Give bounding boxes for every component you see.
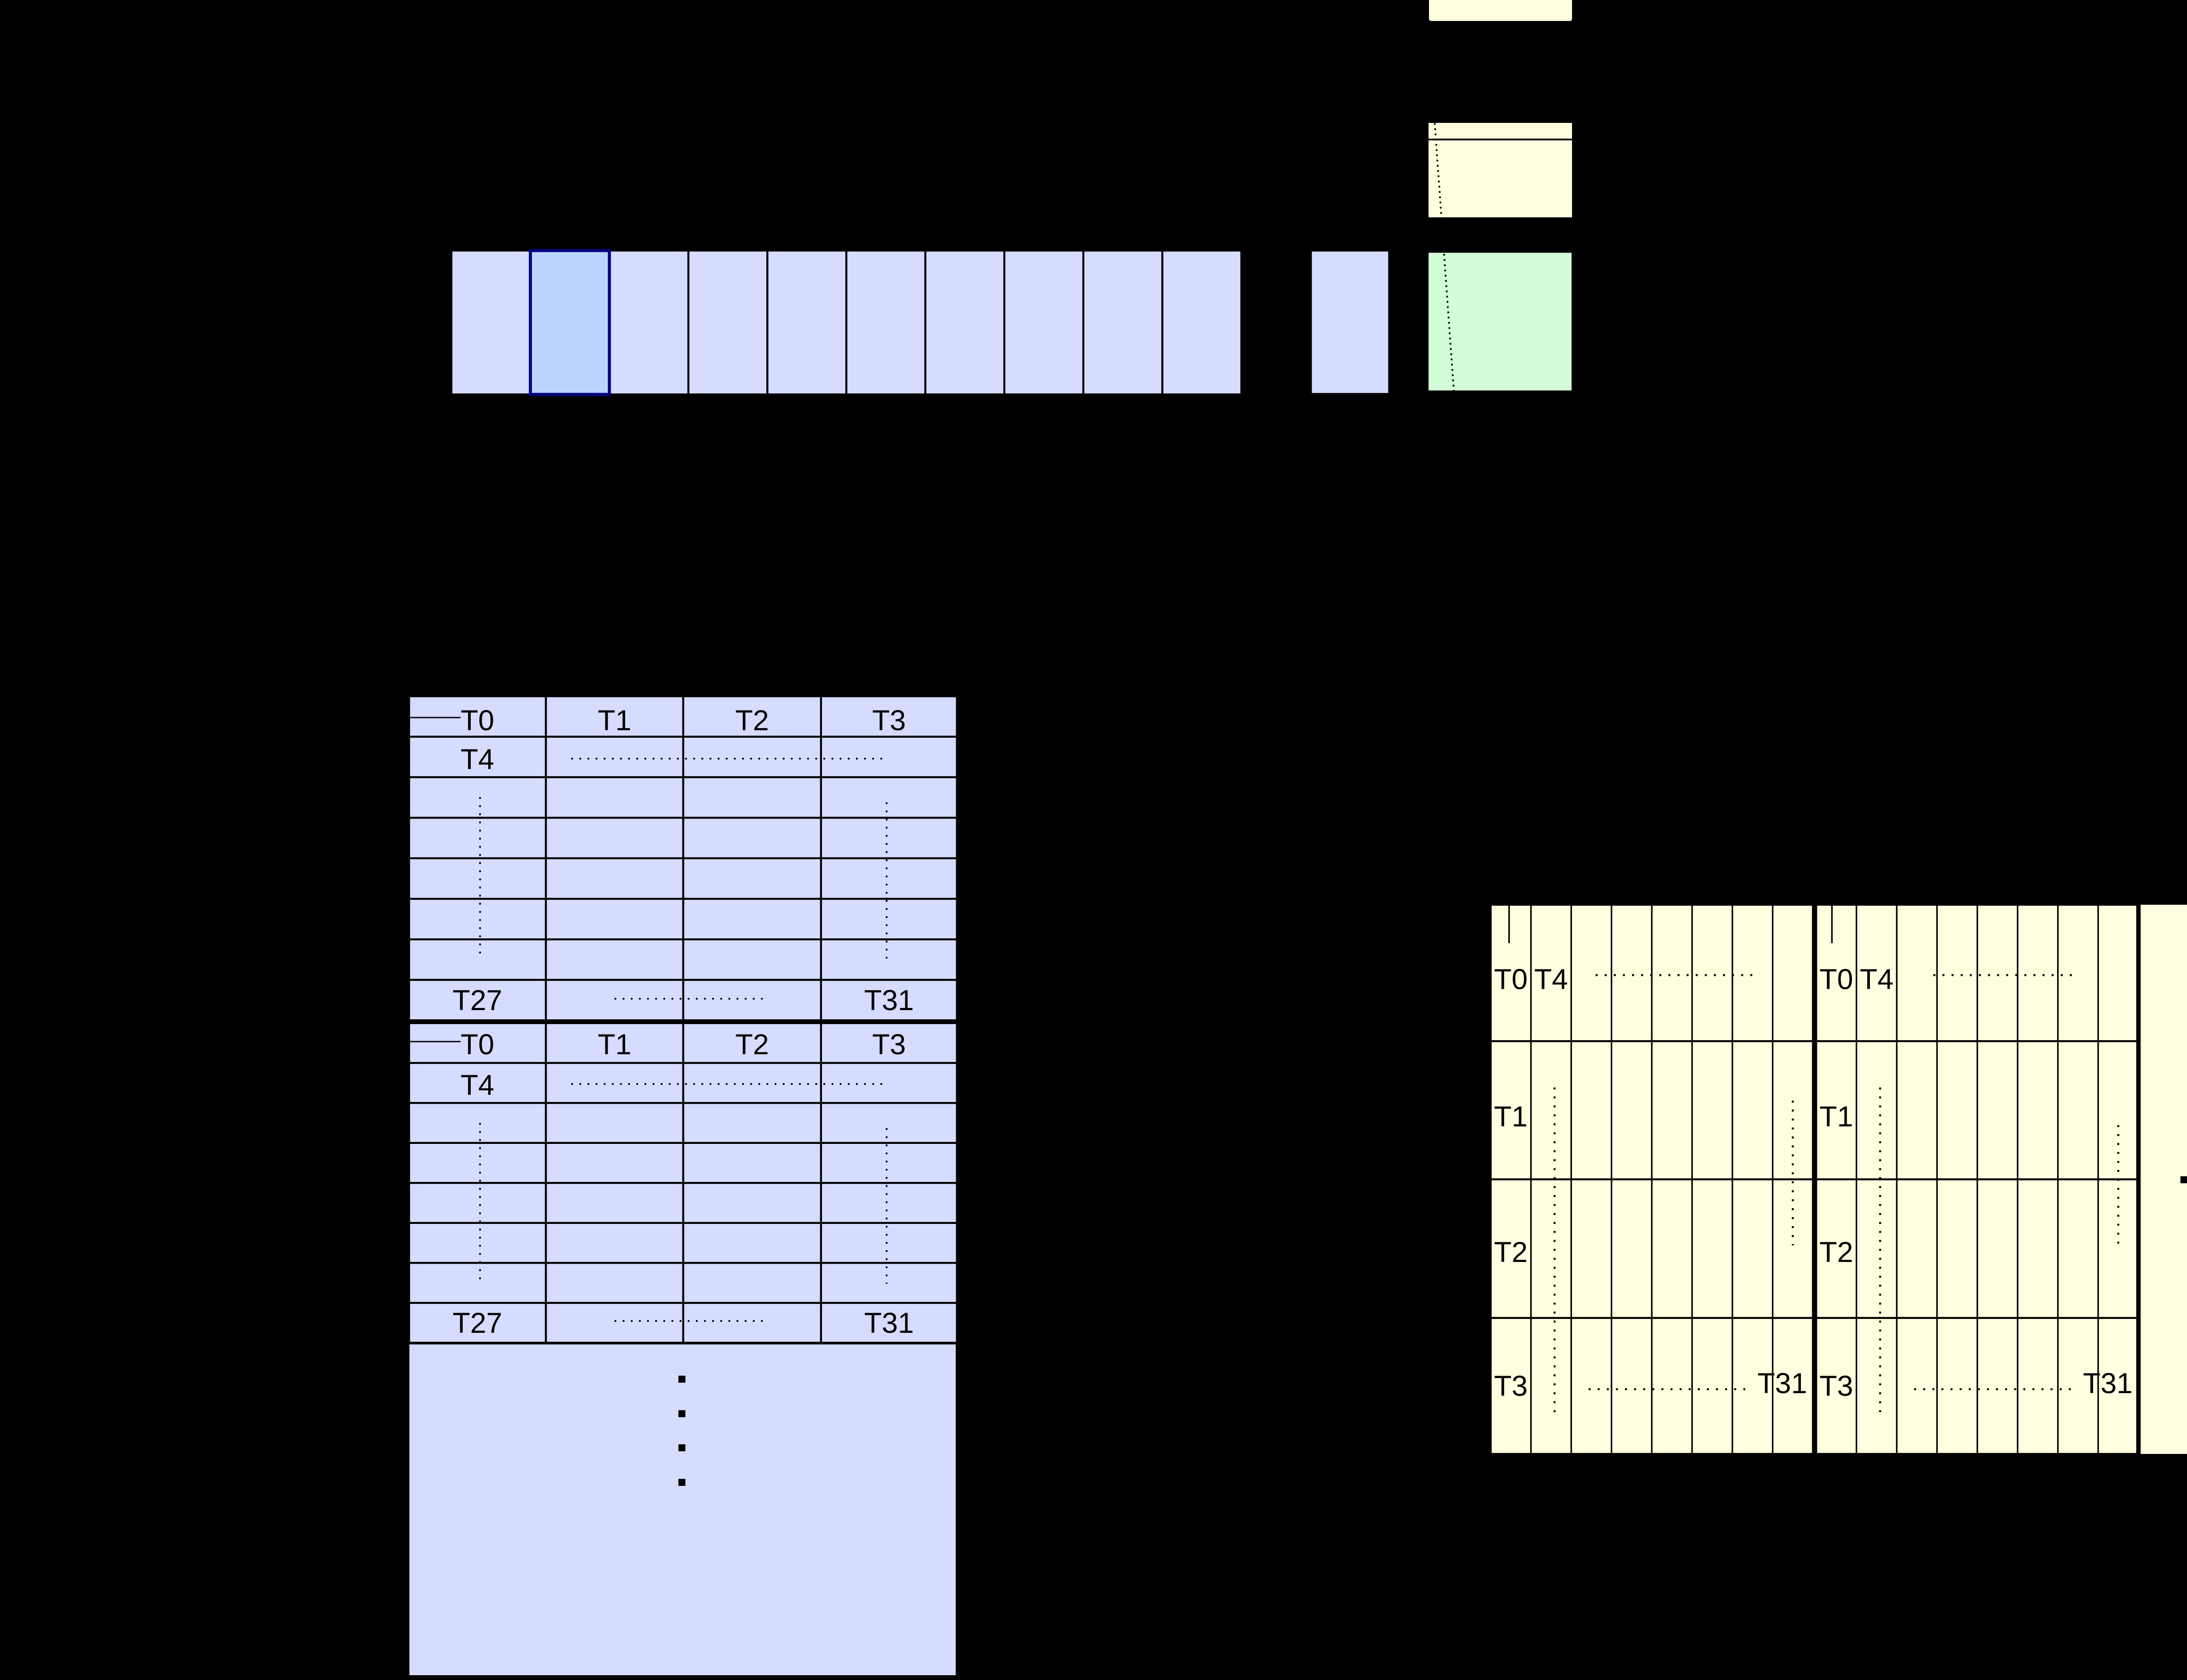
svg-text:T31: T31	[1757, 1367, 1807, 1399]
svg-text:T27: T27	[453, 1307, 503, 1339]
svg-text:T1: T1	[597, 704, 631, 736]
svg-text:T31: T31	[864, 1307, 914, 1339]
svg-text:T4: T4	[461, 1069, 494, 1101]
svg-text:T3: T3	[872, 704, 906, 736]
svg-text:T31: T31	[2083, 1367, 2133, 1399]
svg-text:T1: T1	[1494, 1100, 1528, 1133]
svg-text:T1: T1	[597, 1028, 631, 1060]
svg-text:T27: T27	[453, 984, 503, 1016]
svg-text:T2: T2	[1494, 1236, 1528, 1268]
svg-text:T4: T4	[461, 743, 494, 775]
svg-text:T0: T0	[1494, 963, 1528, 995]
svg-text:T2: T2	[1820, 1236, 1853, 1268]
svg-text:T3: T3	[872, 1028, 906, 1060]
svg-text:T2: T2	[735, 704, 769, 736]
svg-text:T0: T0	[1820, 963, 1853, 995]
svg-text:T0: T0	[461, 1028, 494, 1060]
svg-text:T3: T3	[1820, 1370, 1853, 1402]
svg-text:T4: T4	[1860, 963, 1894, 995]
svg-text:T0: T0	[461, 704, 494, 736]
svg-text:T31: T31	[864, 984, 914, 1016]
svg-text:T3: T3	[1494, 1370, 1528, 1402]
svg-text:T2: T2	[735, 1028, 769, 1060]
svg-text:T1: T1	[1820, 1100, 1853, 1133]
svg-text:T4: T4	[1534, 963, 1568, 995]
